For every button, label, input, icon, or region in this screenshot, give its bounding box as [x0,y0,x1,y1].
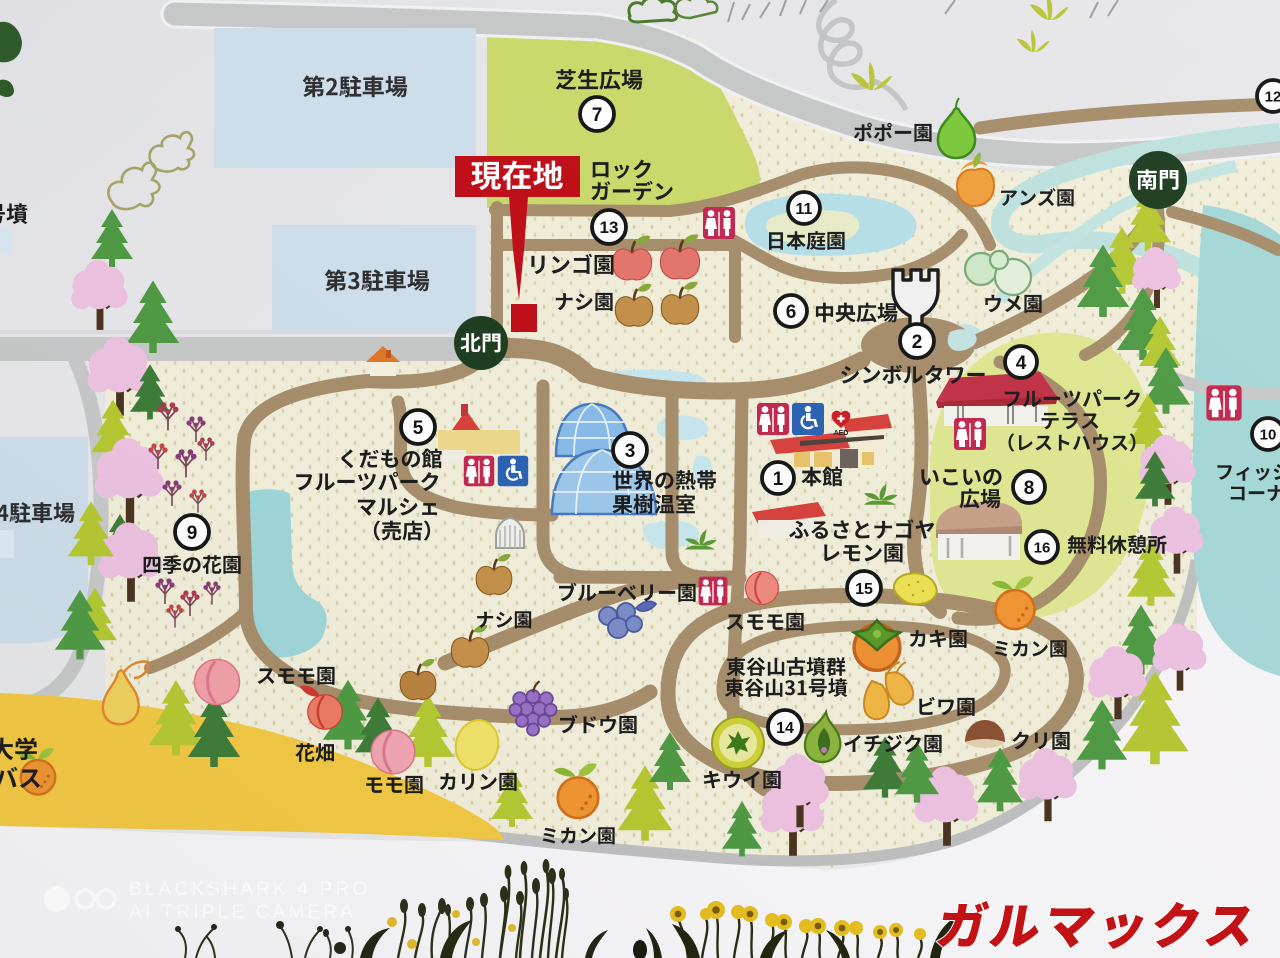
svg-text:10: 10 [1260,426,1277,443]
svg-text:15: 15 [855,581,873,598]
svg-text:8: 8 [1024,478,1035,499]
svg-text:1: 1 [773,469,784,490]
svg-text:16: 16 [1034,539,1051,556]
svg-text:2: 2 [912,332,923,353]
svg-text:4: 4 [1016,353,1027,374]
svg-text:13: 13 [600,218,619,237]
svg-text:12: 12 [1265,88,1280,105]
svg-text:AED: AED [834,430,849,437]
svg-text:11: 11 [796,201,813,218]
svg-text:6: 6 [786,302,797,323]
svg-text:3: 3 [625,441,636,462]
svg-text:14: 14 [776,720,794,737]
svg-text:AI TRIPLE CAMERA: AI TRIPLE CAMERA [129,902,356,923]
svg-text:BLACKSHARK 4 PRO: BLACKSHARK 4 PRO [129,879,370,900]
svg-text:7: 7 [592,105,603,126]
svg-text:9: 9 [187,523,198,544]
svg-text:5: 5 [413,418,424,439]
